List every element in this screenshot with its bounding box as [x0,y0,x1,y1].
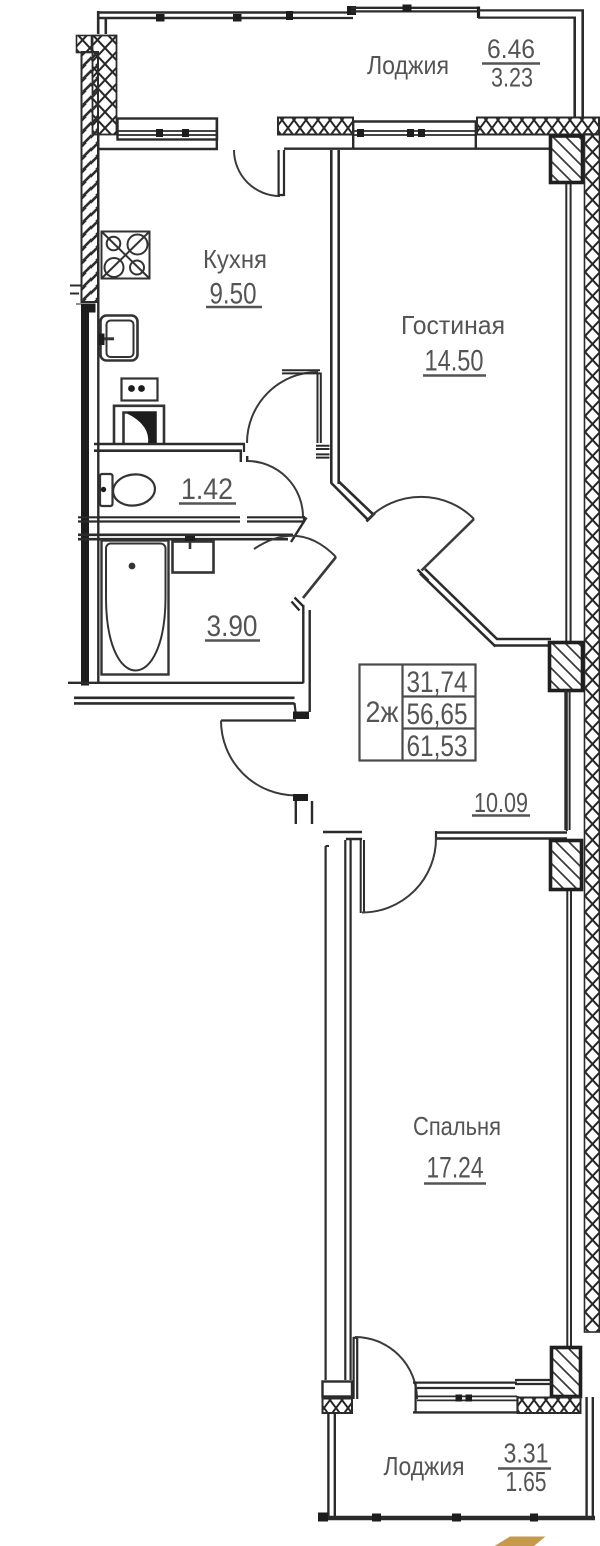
svg-text:Спальня: Спальня [413,1111,501,1141]
svg-text:3.23: 3.23 [491,63,533,93]
svg-text:6.46: 6.46 [487,34,535,64]
svg-text:1.65: 1.65 [506,1466,547,1497]
svg-text:10.09: 10.09 [474,787,528,818]
svg-text:Лоджия: Лоджия [367,50,449,80]
svg-text:2ж: 2ж [366,696,399,729]
svg-text:56,65: 56,65 [407,698,468,731]
svg-text:14.50: 14.50 [425,345,484,378]
svg-text:1.42: 1.42 [181,473,233,506]
svg-text:Кухня: Кухня [203,244,267,274]
svg-text:9.50: 9.50 [210,278,257,311]
svg-text:31,74: 31,74 [407,666,468,699]
svg-text:61,53: 61,53 [407,730,468,763]
svg-text:3.31: 3.31 [504,1438,549,1469]
svg-text:Лоджия: Лоджия [384,1451,465,1481]
svg-text:Гостиная: Гостиная [401,310,505,340]
svg-text:3.90: 3.90 [207,610,258,643]
svg-text:17.24: 17.24 [427,1152,484,1185]
